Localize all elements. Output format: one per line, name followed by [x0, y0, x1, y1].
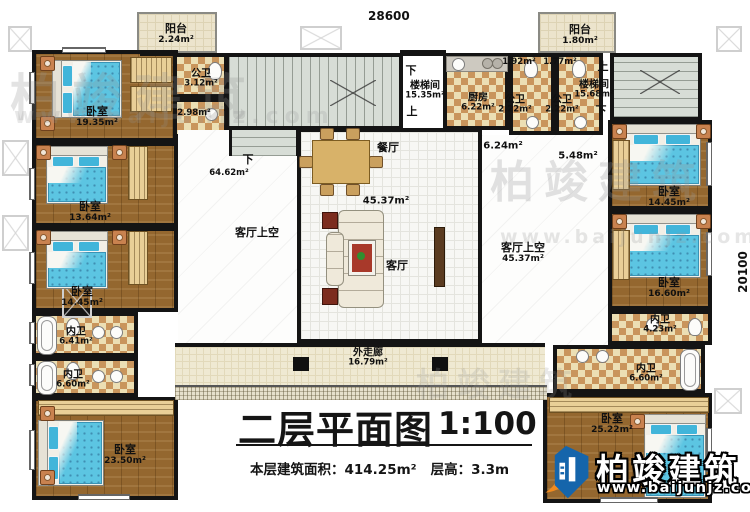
bathtub [37, 361, 57, 395]
label-bath-tl: 公卫 3.12m² [184, 69, 218, 90]
room-name: 客厅上空 [235, 227, 279, 239]
plan-stats: 本层建筑面积：414.25m² 层高：3.3m [250, 458, 509, 478]
bed [46, 146, 108, 204]
bathtub [37, 316, 57, 355]
nightstand [696, 124, 711, 139]
room-area: 25.22m² [591, 425, 633, 435]
label-living-area: 45.37m² [363, 195, 409, 206]
label-ensuite-r2: 内卫 6.60m² [629, 364, 663, 385]
label-void-r: 客厅上空 45.37m² [501, 242, 545, 264]
room-area: 5.48m² [558, 150, 597, 161]
stairwell-center [225, 53, 403, 130]
label-dining: 餐厅 [377, 142, 399, 154]
label-ensuite-l2: 内卫 6.60m² [56, 370, 90, 391]
exterior-eave [714, 388, 742, 414]
corridor-railing [175, 385, 547, 400]
dining-table [312, 140, 370, 184]
wardrobe [128, 146, 148, 200]
label-stair-r-down: 下 [596, 102, 607, 118]
room-area: 15.35m² [405, 92, 444, 102]
sofa-chaise [326, 232, 344, 286]
room-area: 19.35m² [76, 118, 118, 128]
nightstand [36, 230, 51, 245]
label-hall-b: 5.48m² [558, 150, 597, 161]
nightstand [36, 145, 51, 160]
room-area: 45.37m² [502, 254, 544, 264]
chair [320, 184, 334, 196]
label-balcony-tr: 阳台 1.80m² [562, 24, 598, 46]
wardrobe [130, 57, 172, 83]
stair-arrow [330, 80, 376, 106]
room-area: 6.60m² [56, 381, 90, 391]
nightstand [40, 406, 55, 421]
room-name: 阳台 [569, 24, 591, 36]
bed [625, 124, 701, 186]
window [62, 47, 106, 53]
room-area: 6.24m² [483, 140, 522, 151]
window [706, 142, 712, 186]
side-table [322, 288, 338, 305]
plan-scale: 1:100 [438, 406, 537, 442]
label-ensuite-r1: 内卫 4.23m² [643, 315, 677, 336]
room-area: 13.64m² [69, 213, 111, 223]
label-corridor: 外走廊 16.79m² [348, 348, 387, 369]
room-name: 卧室 [71, 286, 93, 298]
room-area: 2.22m² [498, 106, 532, 116]
stat-floor-area: 本层建筑面积：414.25m² [250, 458, 417, 478]
room-name: 客厅 [386, 260, 408, 272]
nightstand [112, 230, 127, 245]
room-name: 卧室 [86, 106, 108, 118]
label-living: 客厅 [386, 260, 408, 272]
tv-cabinet [434, 227, 445, 287]
plant [357, 252, 365, 260]
nightstand [696, 214, 711, 229]
room-area: 2.98m² [177, 109, 211, 119]
room-area: 1.80m² [562, 36, 598, 46]
toilet [688, 318, 702, 336]
stair-arrow [640, 70, 680, 94]
room-area: 6.41m² [59, 338, 93, 348]
label-void-l-down: 下 [243, 151, 254, 167]
sink [596, 350, 609, 363]
sink [574, 116, 587, 129]
window [706, 232, 712, 276]
logo-url: www.baijunjz.com [597, 480, 750, 496]
room-area: 3.12m² [184, 80, 218, 90]
room-area: 15.68m² [574, 91, 613, 101]
nightstand [612, 124, 627, 139]
column [432, 357, 448, 371]
room-name: 卧室 [79, 201, 101, 213]
window [29, 72, 35, 104]
chair [346, 184, 360, 196]
sink [92, 370, 105, 383]
room-area: 6.60m² [629, 375, 663, 385]
label-ensuite-l1: 内卫 6.41m² [59, 327, 93, 348]
room-area: 14.45m² [61, 298, 103, 308]
room-area: 2.22m² [545, 106, 579, 116]
wardrobe [38, 400, 174, 416]
label-bedroom-r1: 卧室 14.45m² [648, 186, 690, 208]
label-bedroom-l4: 卧室 23.50m² [104, 444, 146, 466]
room-area: 14.45m² [648, 198, 690, 208]
room-name: 阳台 [165, 23, 187, 35]
sink [576, 350, 589, 363]
room-area: 1.77m² [543, 58, 577, 68]
label-bedroom-l3: 卧室 14.45m² [61, 286, 103, 308]
wardrobe [612, 230, 630, 280]
window [29, 430, 35, 470]
sink [110, 326, 123, 339]
dimension-right: 20100 [736, 251, 750, 293]
exterior-gable [300, 26, 342, 50]
wardrobe [128, 231, 148, 285]
stat-floor-height: 层高：3.3m [431, 458, 509, 478]
stair-flight-down [229, 130, 299, 156]
room-name: 卧室 [114, 444, 136, 456]
nightstand [112, 145, 127, 160]
wall [140, 50, 178, 56]
label-stair-r-up: 上 [598, 58, 609, 74]
room-name: 卧室 [658, 277, 680, 289]
label-bath-r1-sub: 1.92m² [502, 58, 536, 68]
wardrobe [130, 86, 172, 112]
sink [110, 370, 123, 383]
chair [346, 128, 360, 140]
exterior-eave [716, 26, 742, 52]
label-bedroom-r2: 卧室 16.60m² [648, 277, 690, 299]
sink [526, 116, 539, 129]
column [293, 357, 309, 371]
room-name: 客厅上空 [501, 242, 545, 254]
side-table [322, 212, 338, 229]
baijun-logo-icon [538, 444, 594, 502]
bed [46, 231, 108, 289]
window [29, 252, 35, 284]
room-area: 16.60m² [648, 289, 690, 299]
room-area: 64.62m² [209, 169, 248, 179]
nightstand [612, 214, 627, 229]
nightstand [40, 56, 55, 71]
chair [320, 128, 334, 140]
room-area: 16.79m² [348, 359, 387, 369]
room-area: 4.23m² [643, 326, 677, 336]
title-underline [236, 444, 532, 446]
room-area: 2.24m² [158, 35, 194, 45]
window [29, 168, 35, 200]
label-bath-r1: 公卫 2.22m² [498, 95, 532, 116]
room-area: 23.50m² [104, 456, 146, 466]
bathtub [680, 349, 700, 391]
label-bedroom-l1: 卧室 19.35m² [76, 106, 118, 128]
label-stair-down: 下 [406, 62, 417, 78]
label-bedroom-l2: 卧室 13.64m² [69, 201, 111, 223]
window [29, 364, 35, 386]
label-stairwell-right: 楼梯间 15.68m² [574, 80, 613, 101]
dimension-top: 28600 [368, 9, 410, 23]
room-name: 卧室 [658, 186, 680, 198]
wardrobe [549, 397, 709, 413]
label-void-l-area: 64.62m² [209, 169, 248, 179]
room-area: 45.37m² [363, 195, 409, 206]
bed [625, 214, 701, 278]
wardrobe [612, 140, 630, 190]
label-stairwell-center: 楼梯间 15.35m² [405, 81, 444, 102]
floor-plan: 柏竣建筑 www.baijunjz.com 柏竣建筑 www.baijunjz.… [0, 0, 750, 512]
window [78, 494, 130, 500]
room-name: 餐厅 [377, 142, 399, 154]
exterior-eave [8, 26, 32, 52]
window [600, 497, 658, 503]
nightstand [40, 116, 55, 131]
label-void-l: 客厅上空 [235, 227, 279, 239]
wall [400, 50, 446, 56]
label-bath-r2-sub: 1.77m² [543, 58, 577, 68]
label-stair-up: 上 [407, 103, 418, 119]
room-area: 1.92m² [502, 58, 536, 68]
label-bath-tl2: 2.98m² [177, 109, 211, 119]
room-name: 卧室 [601, 413, 623, 425]
window [29, 322, 35, 344]
room-area: 6.22m² [461, 104, 495, 114]
exterior-eave [2, 215, 29, 251]
sink [452, 58, 465, 71]
label-balcony-tl: 阳台 2.24m² [158, 23, 194, 45]
sink [92, 326, 105, 339]
chair [299, 156, 313, 168]
chair [369, 156, 383, 168]
label-bedroom-r3: 卧室 25.22m² [591, 413, 633, 435]
exterior-eave [2, 140, 29, 176]
nightstand [40, 470, 55, 485]
label-hall-a: 6.24m² [483, 140, 522, 151]
label-kitchen: 厨房 6.22m² [461, 93, 495, 114]
